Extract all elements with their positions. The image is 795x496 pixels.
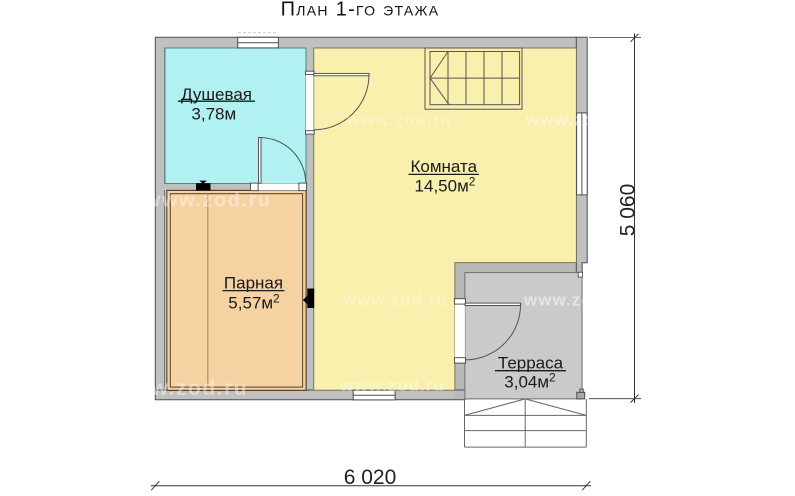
svg-text:Комната: Комната [411,157,478,176]
svg-text:6 020: 6 020 [344,466,397,489]
svg-text:14,50м2: 14,50м2 [415,175,476,196]
svg-text:Терраса: Терраса [498,353,564,372]
svg-text:www.zod.ru: www.zod.ru [346,111,452,130]
svg-text:www.zod.ru: www.zod.ru [342,291,448,310]
svg-text:www.zod.ru: www.zod.ru [144,190,271,212]
svg-text:www.zod.ru: www.zod.ru [525,111,631,130]
svg-text:План 1-го этажа: План 1-го этажа [281,0,440,21]
svg-text:www.zod.ru: www.zod.ru [339,376,445,395]
svg-text:3,04м2: 3,04м2 [504,371,556,392]
svg-text:Парная: Парная [224,273,283,292]
svg-text:5,57м2: 5,57м2 [228,292,280,313]
svg-text:www.zod.ru: www.zod.ru [115,377,248,400]
svg-text:5 060: 5 060 [617,184,640,237]
svg-text:www.zod.ru: www.zod.ru [523,291,629,310]
svg-text:3,78м: 3,78м [191,105,236,124]
